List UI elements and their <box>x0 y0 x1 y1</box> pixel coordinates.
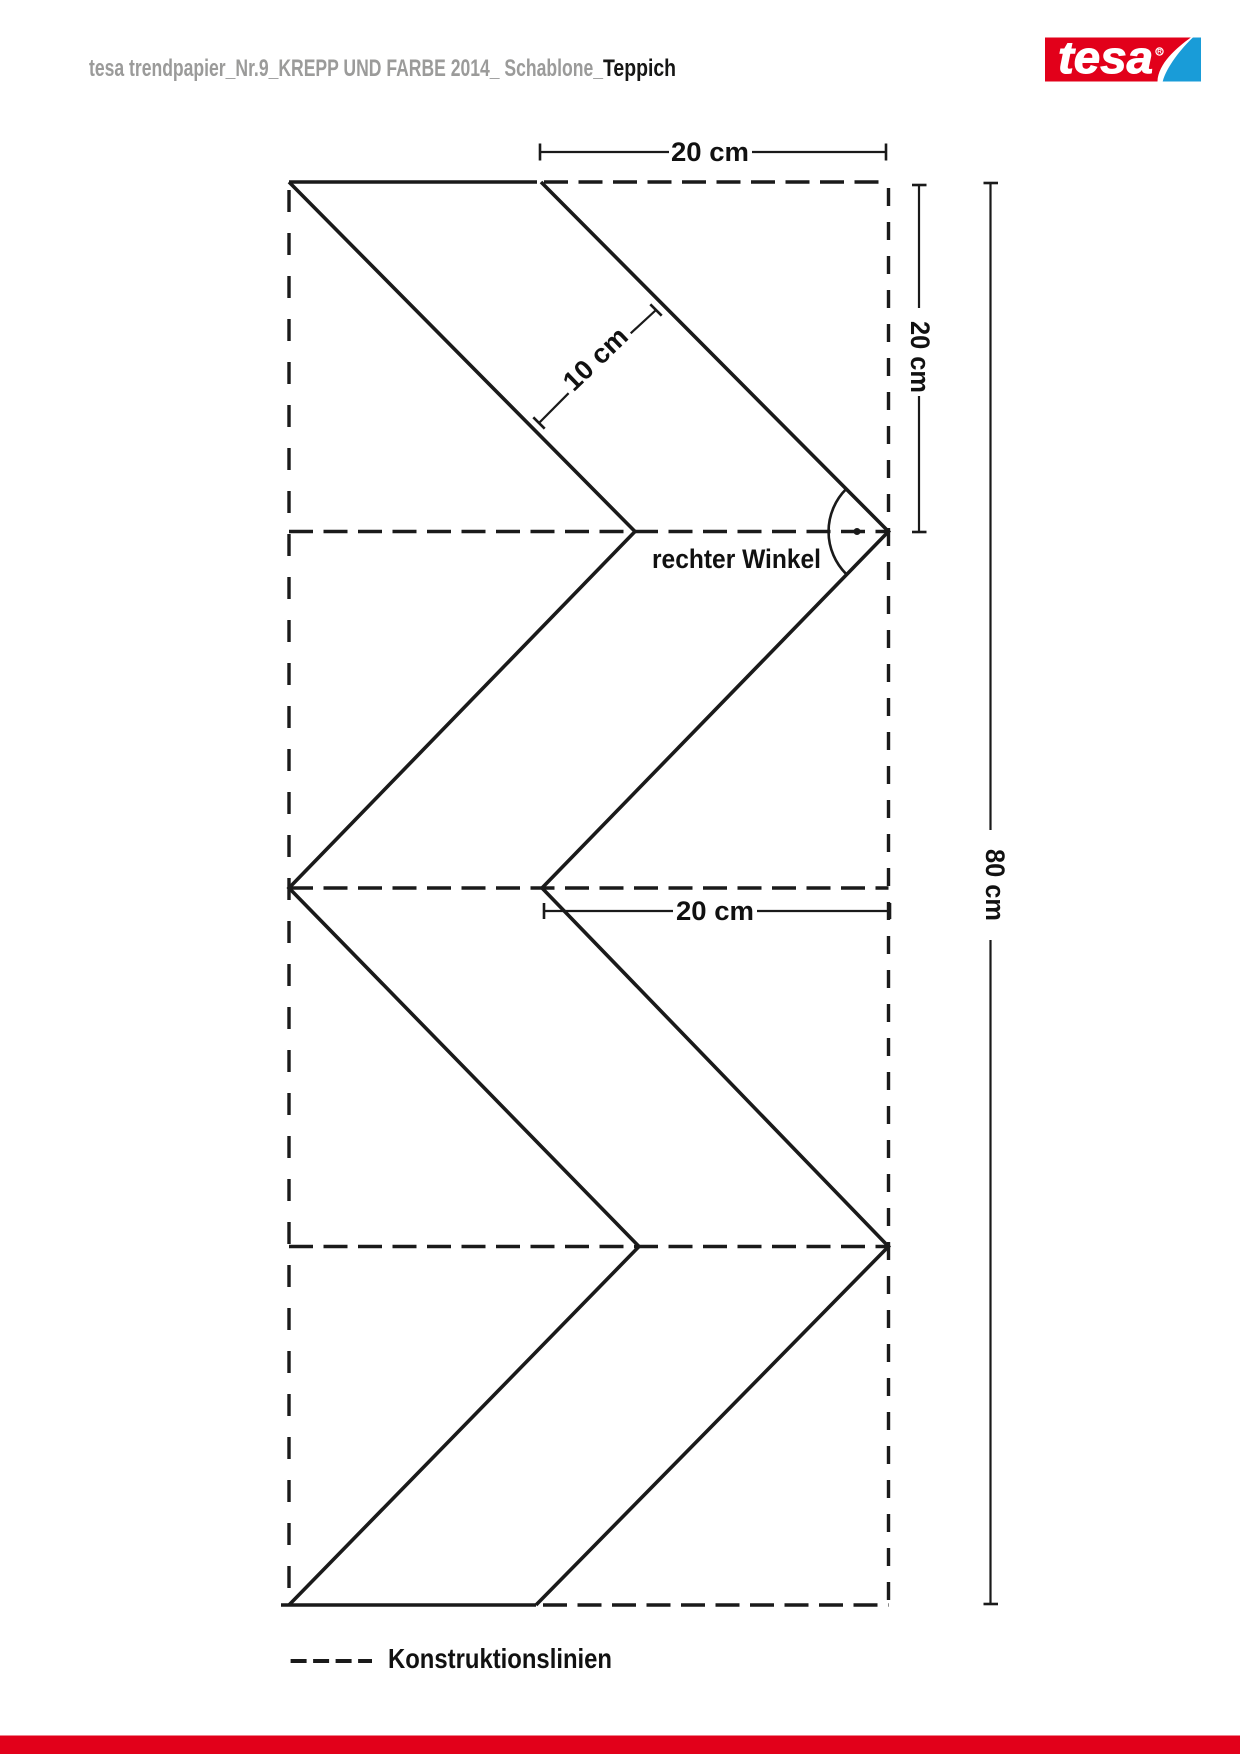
svg-text:tesa trendpapier_Nr.9_KREPP UN: tesa trendpapier_Nr.9_KREPP UND FARBE 20… <box>89 55 603 82</box>
svg-text:tesa: tesa <box>1058 32 1153 83</box>
svg-text:20 cm: 20 cm <box>905 321 935 393</box>
svg-text:rechter Winkel: rechter Winkel <box>652 544 821 574</box>
svg-text:Konstruktionslinien: Konstruktionslinien <box>388 1643 612 1674</box>
svg-text:80 cm: 80 cm <box>980 849 1010 921</box>
svg-text:R: R <box>1157 49 1162 56</box>
svg-text:20 cm: 20 cm <box>676 896 754 926</box>
svg-text:Teppich: Teppich <box>603 55 676 82</box>
svg-text:20 cm: 20 cm <box>671 137 749 167</box>
